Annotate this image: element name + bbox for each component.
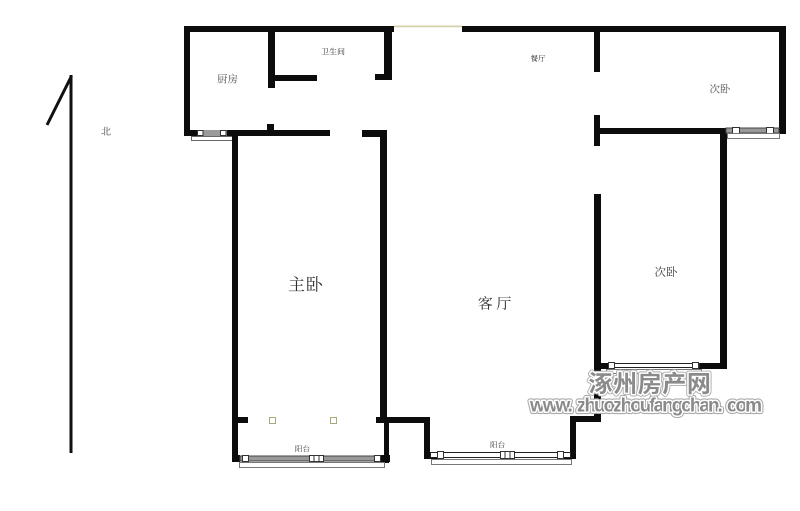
svg-text:www. zhuozhoufangchan. com: www. zhuozhoufangchan. com (529, 396, 762, 417)
